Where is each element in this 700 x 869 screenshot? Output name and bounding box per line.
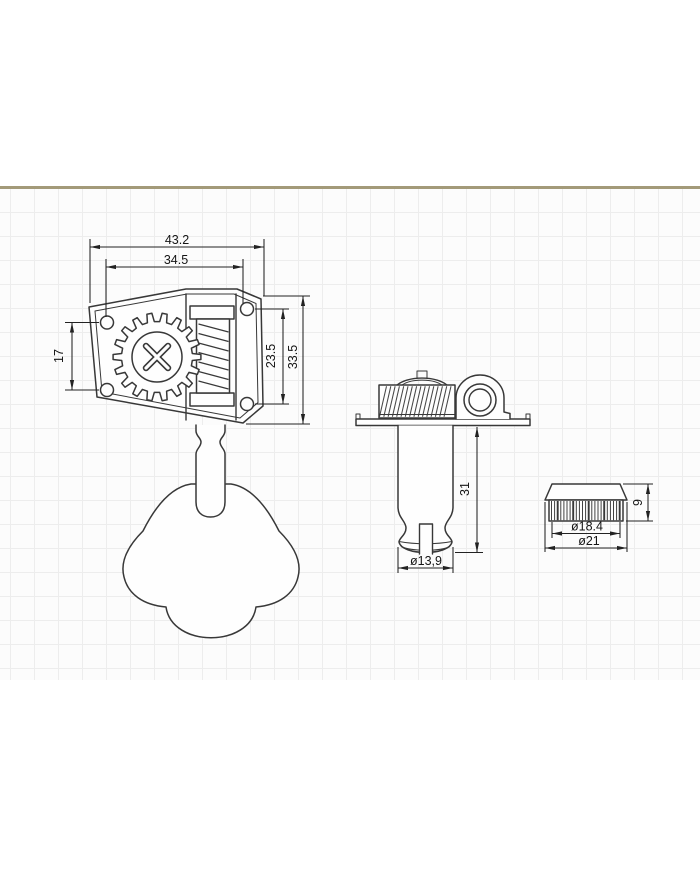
mounting-plate bbox=[356, 419, 530, 426]
dimension-label-bushing-height: 9 bbox=[631, 499, 645, 506]
page: 43.2 34.5 17 23.5 bbox=[0, 0, 700, 869]
dimension-label-post-length: 31 bbox=[458, 482, 472, 496]
bushing-flange bbox=[545, 484, 627, 500]
screw-hole-bottom-right bbox=[241, 398, 254, 411]
worm-top-cap bbox=[190, 306, 234, 319]
dimension-post-length: 31 bbox=[455, 427, 483, 553]
button-stem bbox=[196, 425, 225, 517]
string-slot-fill bbox=[420, 524, 433, 554]
screw-hole-top-right bbox=[241, 303, 254, 316]
dimension-label-bushing-outer-diameter: ø21 bbox=[578, 534, 600, 548]
side-view-tuner: 31 ø13,9 bbox=[356, 371, 530, 573]
dimension-label-bushing-inner-diameter: ø18.4 bbox=[571, 520, 603, 534]
dimension-label-overall-height: 33.5 bbox=[286, 345, 300, 369]
screw-hole-top-left bbox=[101, 316, 114, 329]
dimension-label-overall-width: 43.2 bbox=[165, 233, 189, 247]
screw-hole-bottom-left bbox=[101, 384, 114, 397]
bushing-view: 9 ø18.4 ø21 bbox=[545, 484, 653, 552]
dimension-label-post-diameter: ø13,9 bbox=[410, 554, 442, 568]
technical-drawing-canvas: 43.2 34.5 17 23.5 bbox=[0, 0, 700, 869]
dimension-label-left-hole-span: 17 bbox=[52, 349, 66, 363]
dimension-label-right-hole-span: 23.5 bbox=[264, 344, 278, 368]
front-view-tuner-housing: 43.2 34.5 17 23.5 bbox=[52, 233, 310, 638]
worm-bottom-cap bbox=[190, 393, 234, 406]
dimension-label-hole-span: 34.5 bbox=[164, 253, 188, 267]
